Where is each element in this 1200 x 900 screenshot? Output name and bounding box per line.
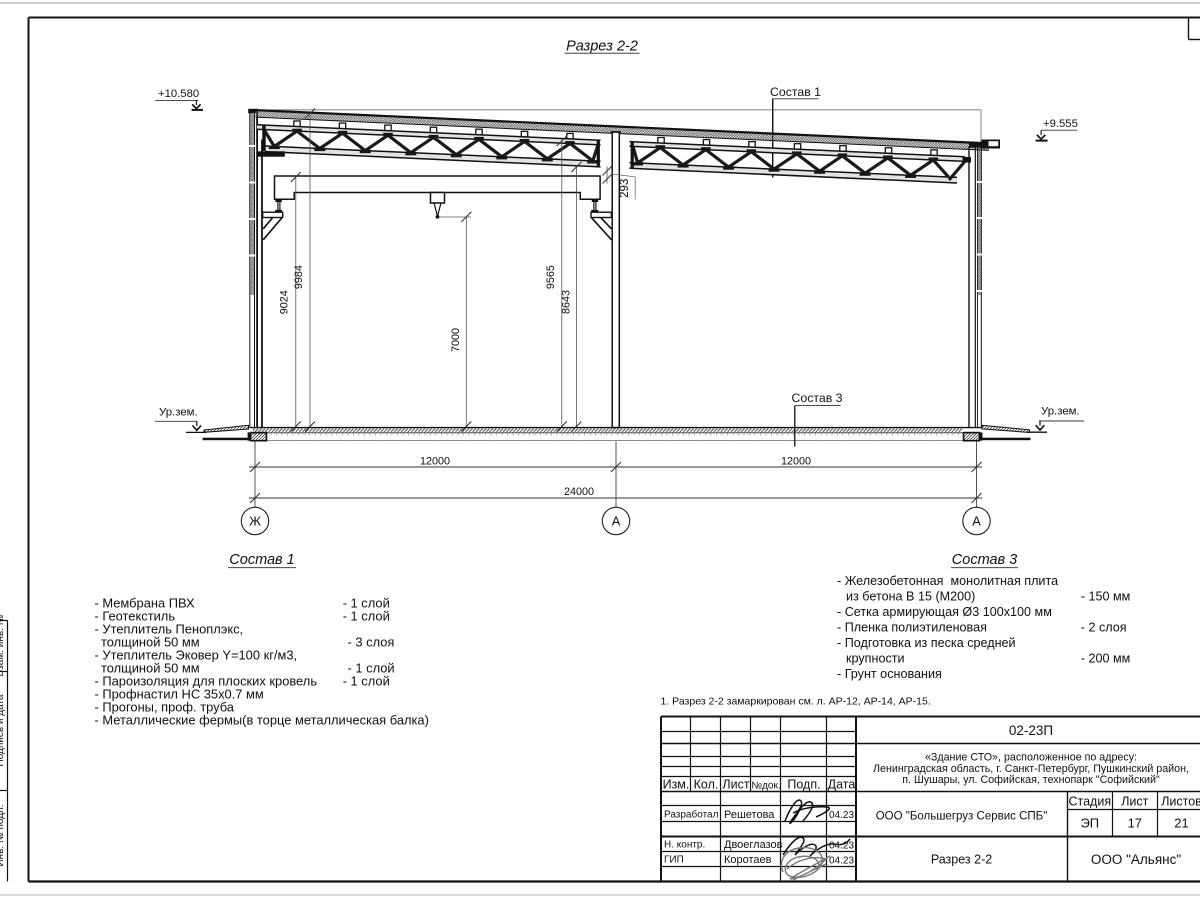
svg-text:Состав 1: Состав 1 (770, 85, 821, 99)
svg-text:12000: 12000 (420, 456, 450, 468)
svg-text:Инв. № подл.: Инв. № подл. (0, 804, 6, 866)
svg-text:Состав 1: Состав 1 (229, 552, 294, 568)
svg-text:- Подготовка из песка средней: - Подготовка из песка средней (837, 636, 1016, 650)
svg-text:+9.555: +9.555 (1043, 118, 1078, 130)
svg-text:- Железобетонная монолитная п: - Железобетонная монолитная плита (837, 574, 1058, 588)
svg-text:крупности: крупности (846, 651, 905, 665)
svg-text:Лист: Лист (1121, 794, 1148, 808)
svg-text:8643: 8643 (560, 290, 572, 314)
svg-text:- 1 слой: - 1 слой (343, 608, 390, 623)
svg-text:Двоеглазов: Двоеглазов (724, 839, 783, 851)
svg-text:1. Разрез 2-2 замаркирован см.: 1. Разрез 2-2 замаркирован см. л. АР-12,… (661, 695, 931, 707)
svg-text:п. Шушары, ул. Софийская, техн: п. Шушары, ул. Софийская, технопарк "Соф… (902, 774, 1160, 786)
svg-text:Разрез 2-2: Разрез 2-2 (566, 38, 638, 54)
svg-text:293: 293 (619, 179, 631, 198)
svg-text:9984: 9984 (293, 265, 305, 289)
svg-text:- Сетка армирующая Ø3 100x100: - Сетка армирующая Ø3 100x100 мм (837, 605, 1052, 619)
svg-text:ЭП: ЭП (1080, 816, 1099, 831)
svg-text:А: А (972, 514, 981, 529)
svg-text:Лист: Лист (722, 778, 749, 792)
svg-text:04.23: 04.23 (829, 810, 854, 821)
svg-text:Стадия: Стадия (1068, 794, 1111, 808)
svg-text:Листов: Листов (1161, 794, 1200, 808)
svg-text:ГИП: ГИП (664, 855, 684, 866)
svg-text:+10.580: +10.580 (158, 88, 199, 100)
svg-text:Состав 3: Состав 3 (792, 391, 843, 405)
svg-text:ООО "Большегруз Сервис СПБ": ООО "Большегруз Сервис СПБ" (876, 811, 1048, 823)
svg-text:Н. контр.: Н. контр. (664, 840, 705, 851)
svg-text:04.23: 04.23 (829, 856, 854, 867)
svg-text:9024: 9024 (278, 290, 290, 314)
svg-text:Ленинградская область, г. Санк: Ленинградская область, г. Санкт-Петербур… (873, 763, 1189, 775)
svg-text:7000: 7000 (450, 328, 462, 352)
svg-text:Дата: Дата (828, 778, 856, 792)
svg-text:02-23П: 02-23П (1009, 723, 1053, 738)
svg-text:Решетова: Решетова (724, 809, 775, 821)
svg-text:Кол.: Кол. (694, 778, 719, 792)
svg-text:Подп.: Подп. (787, 778, 820, 792)
svg-text:9565: 9565 (545, 265, 557, 289)
svg-text:- 150 мм: - 150 мм (1081, 589, 1131, 603)
svg-text:Коротаев: Коротаев (724, 854, 772, 866)
svg-text:- Пленка полиэтиленовая: - Пленка полиэтиленовая (837, 620, 987, 634)
svg-text:04.23: 04.23 (829, 841, 854, 852)
svg-text:- 200 мм: - 200 мм (1081, 651, 1131, 665)
svg-text:17: 17 (1128, 816, 1142, 831)
svg-text:- 3 слоя: - 3 слоя (348, 634, 395, 649)
svg-text:12000: 12000 (781, 456, 811, 468)
svg-text:из бетона В 15 (М200): из бетона В 15 (М200) (846, 589, 975, 603)
svg-text:Изм.: Изм. (663, 778, 690, 792)
svg-text:Взам. инв. №: Взам. инв. № (0, 614, 6, 676)
svg-text:Подпись и дата: Подпись и дата (0, 694, 6, 766)
svg-text:- Грунт основания: - Грунт основания (837, 667, 942, 681)
svg-text:Состав 3: Состав 3 (952, 552, 1017, 568)
svg-text:№док.: №док. (751, 780, 780, 791)
svg-text:«Здание СТО», расположенное по: «Здание СТО», расположенное по адресу: (925, 752, 1137, 764)
svg-text:Разработал: Разработал (664, 809, 719, 821)
svg-text:А: А (612, 514, 621, 529)
svg-text:24000: 24000 (564, 486, 594, 498)
svg-text:- Металлические фермы(в торце: - Металлические фермы(в торце металличес… (95, 712, 429, 727)
svg-text:ООО "Альянс": ООО "Альянс" (1091, 852, 1181, 867)
svg-text:Ж: Ж (249, 514, 261, 529)
svg-text:21: 21 (1174, 816, 1188, 831)
svg-text:- 1 слой: - 1 слой (343, 673, 390, 688)
svg-text:- 2 слоя: - 2 слоя (1081, 620, 1127, 634)
svg-text:Ур.зем.: Ур.зем. (1041, 406, 1080, 418)
svg-text:Ур.зем.: Ур.зем. (159, 406, 198, 418)
svg-text:Разрез 2-2: Разрез 2-2 (931, 853, 992, 867)
